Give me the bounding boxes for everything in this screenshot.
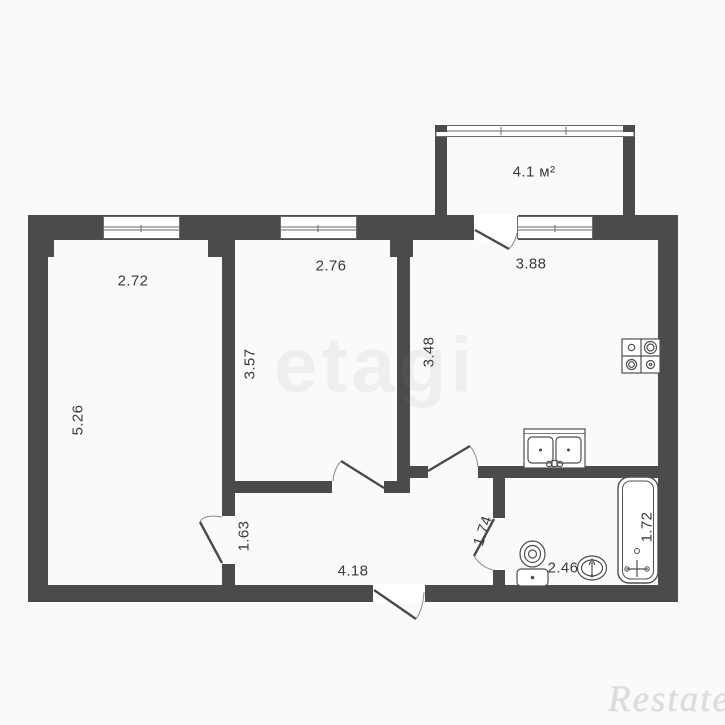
floor-plan: 4.1 м² 2.72 5.26 2.76 3.57 3.88 3.48 1.6… bbox=[0, 0, 725, 725]
door-swing-icon bbox=[200, 516, 222, 563]
doors bbox=[200, 230, 517, 619]
window-icon bbox=[104, 217, 180, 239]
window-icon bbox=[518, 217, 593, 239]
wall-pier-kitchen-divider bbox=[390, 240, 413, 257]
stove-icon bbox=[622, 339, 660, 373]
center-watermark: etagi bbox=[274, 320, 476, 411]
door-swing-icon bbox=[333, 461, 384, 488]
room-middle-width-label: 2.76 bbox=[316, 258, 347, 275]
wall-left bbox=[28, 215, 48, 602]
balcony-wall-right bbox=[623, 125, 635, 217]
wall-bathroom-left-upper bbox=[493, 478, 505, 518]
wall-rooms-divider-lower bbox=[222, 564, 235, 585]
hall-left-label: 1.63 bbox=[236, 521, 253, 552]
balcony-wall-left bbox=[435, 125, 447, 217]
wall-kitchen-bottom-left-stub bbox=[410, 466, 428, 478]
balcony-door-opening bbox=[474, 214, 518, 241]
washbasin-icon bbox=[578, 556, 607, 580]
wall-rooms-divider-upper bbox=[222, 240, 235, 516]
tub-length-label: 1.72 bbox=[639, 512, 656, 543]
wall-right bbox=[658, 215, 678, 602]
hall-width-label: 4.18 bbox=[338, 563, 369, 580]
kitchen-width-label: 3.88 bbox=[516, 256, 547, 273]
door-swing-icon bbox=[428, 446, 478, 471]
toilet-icon bbox=[517, 541, 548, 586]
bath-width-label: 2.46 bbox=[548, 560, 579, 577]
room-left-height-label: 5.26 bbox=[70, 405, 87, 436]
room-left-width-label: 2.72 bbox=[118, 273, 149, 290]
balcony-area-label: 4.1 м² bbox=[513, 164, 556, 181]
wall-bathroom-left-lower bbox=[493, 570, 505, 585]
window-icon bbox=[281, 217, 357, 239]
wall-middleroom-bottom-left bbox=[235, 481, 332, 493]
wall-pier-left-divider bbox=[208, 240, 235, 257]
room-middle-height-label: 3.57 bbox=[242, 349, 259, 380]
balcony-glazing-icon bbox=[435, 125, 635, 137]
brand-watermark: Restate bbox=[608, 678, 725, 721]
wall-bottom bbox=[28, 585, 678, 602]
wall-pier-top-left bbox=[48, 240, 54, 257]
kitchen-sink-icon bbox=[524, 429, 585, 468]
